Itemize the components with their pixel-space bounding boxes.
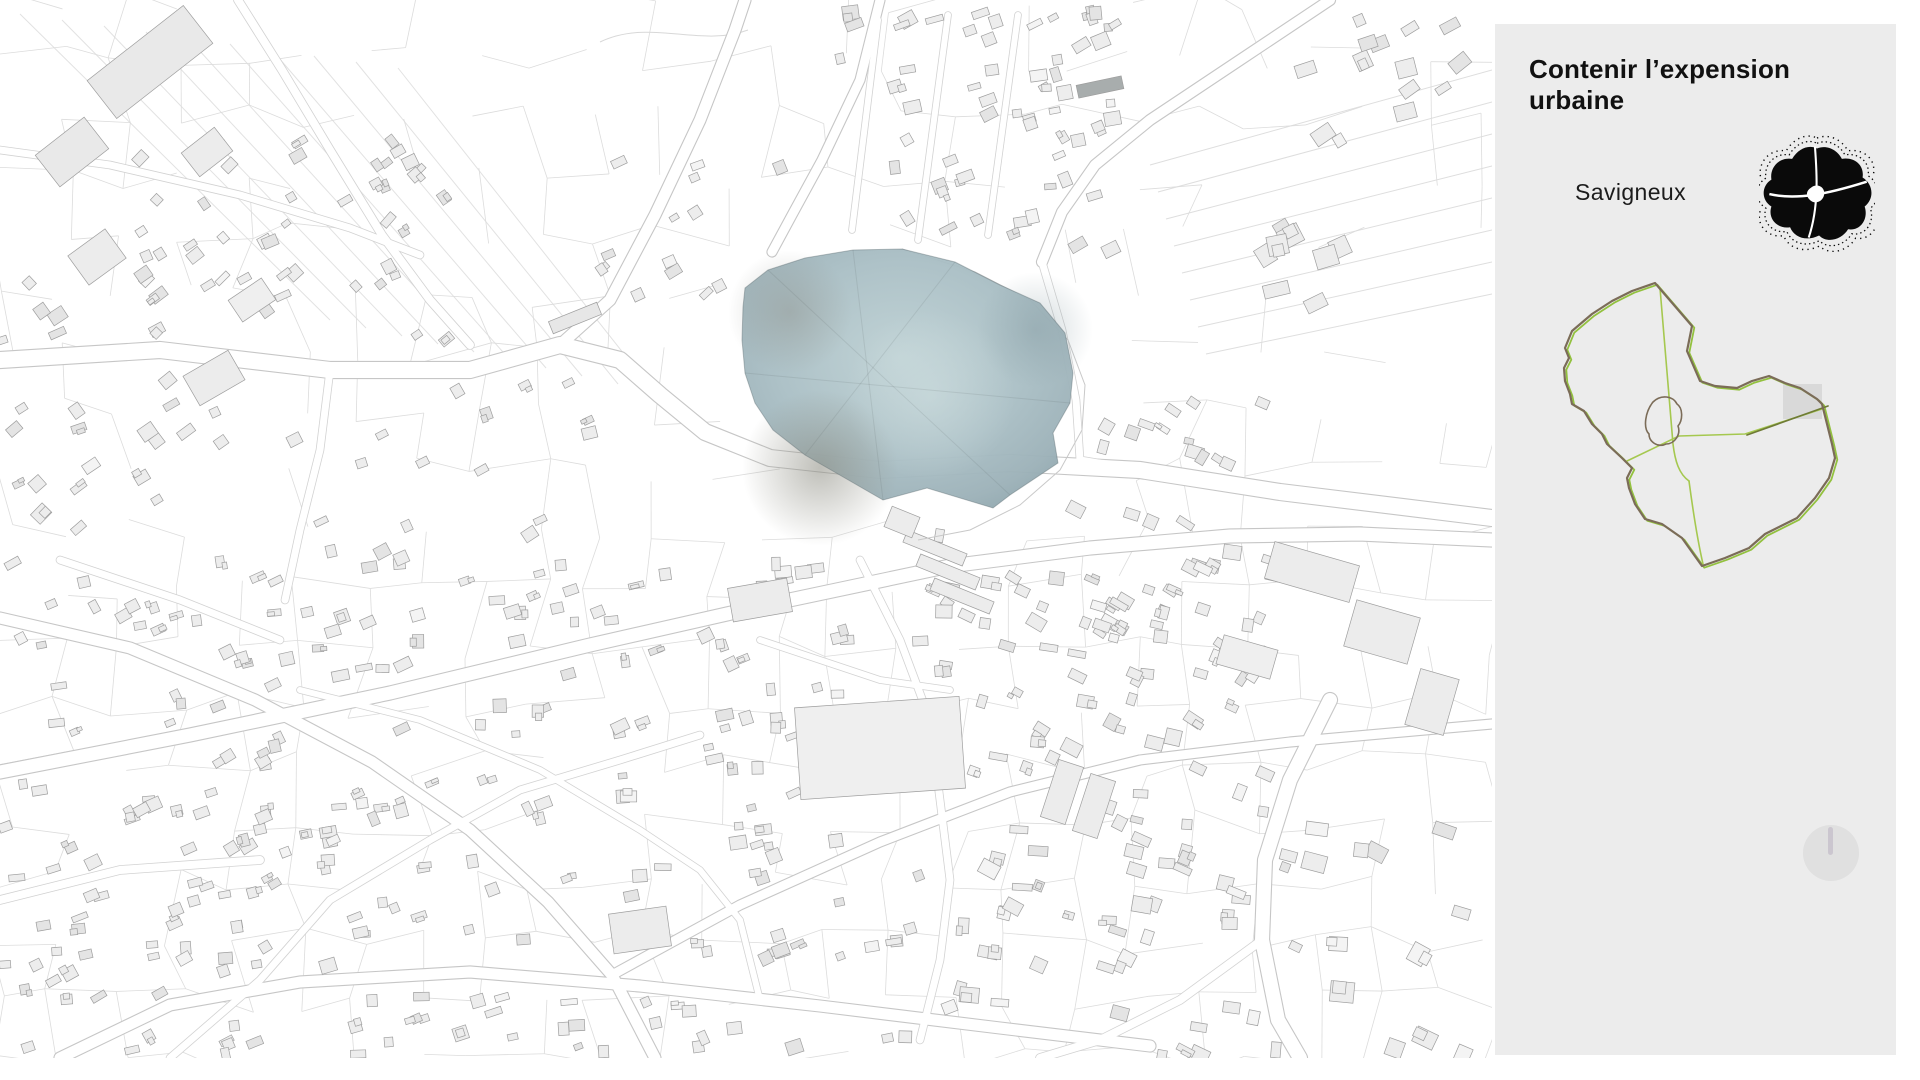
commune-label: Savigneux <box>1575 179 1686 206</box>
pond-overlay[interactable] <box>728 249 1093 546</box>
page-title: Contenir l’expension urbaine <box>1529 54 1879 116</box>
sidebar-panel: Contenir l’expension urbaine Savigneux <box>1495 24 1896 1055</box>
commune-row: Savigneux <box>1575 128 1875 256</box>
dial-tick-icon <box>1828 827 1833 855</box>
map-canvas[interactable] <box>0 0 1492 1058</box>
commune-contour-icon <box>1759 132 1875 252</box>
dial-button[interactable] <box>1803 825 1859 881</box>
minimap[interactable] <box>1557 276 1867 591</box>
